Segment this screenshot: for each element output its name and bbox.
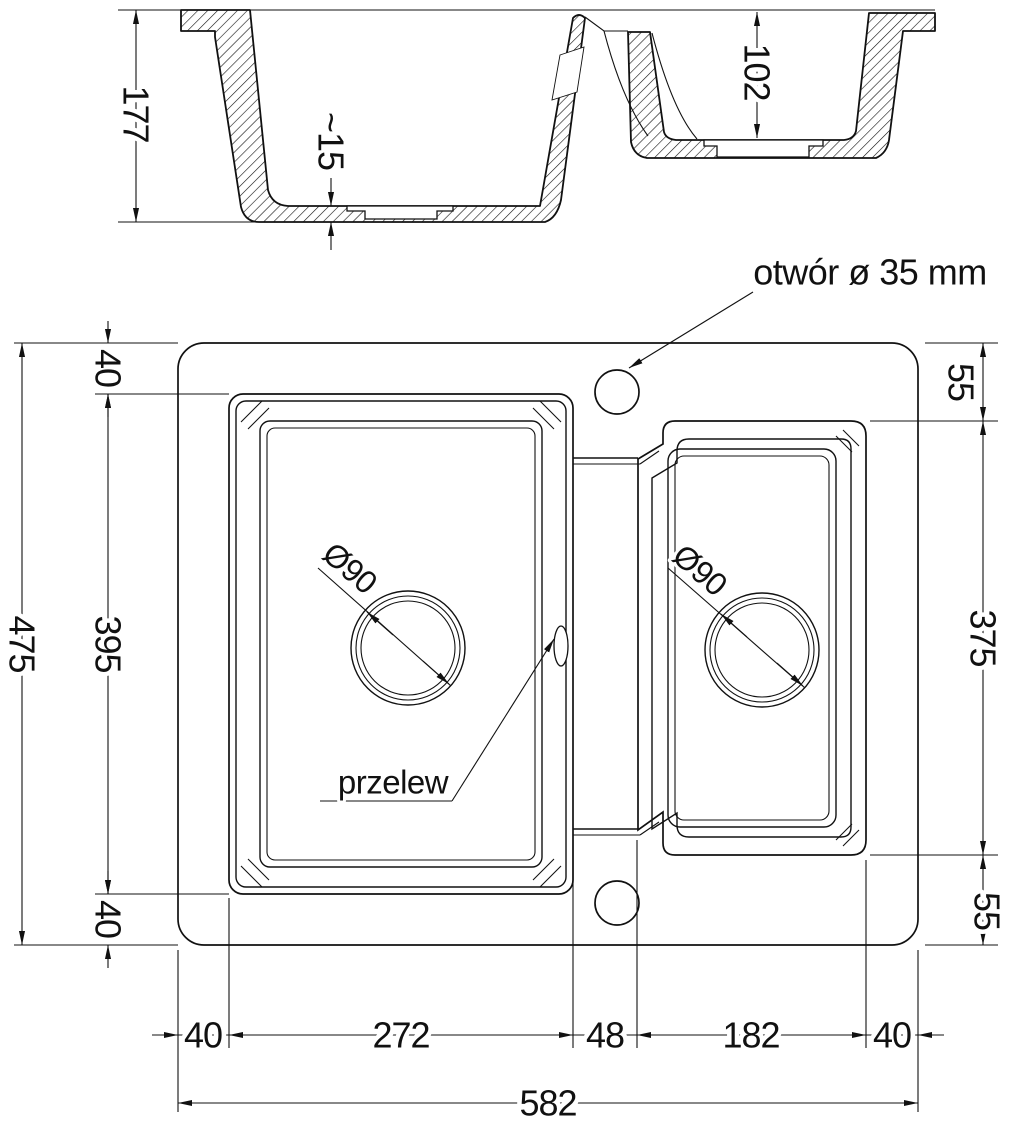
bowl1-outline-mid: [236, 401, 566, 887]
faucet-hole-leader: [629, 292, 753, 368]
dim-height-total: 475: [2, 615, 43, 672]
label-faucet-hole: otwór ø 35 mm: [753, 252, 987, 293]
plan-view: Ø90 Ø90 przelew otwór ø 35 mm: [2, 252, 1008, 1124]
bowl1-corner-bevels: [241, 401, 561, 887]
dim-right-top-margin: 55: [941, 363, 982, 401]
bottom-dimensions: [152, 840, 944, 1112]
dim-bowl2-width: 182: [722, 1015, 779, 1056]
dim-drain-left: Ø90: [316, 535, 384, 601]
dim-bowl2-height: 375: [963, 609, 1004, 666]
dim-floor-thickness: ~15: [311, 112, 352, 170]
dim-bottom-margin: 40: [88, 900, 129, 938]
sink-technical-drawing: 177 ~15 102: [0, 0, 1011, 1131]
bowl1-drain: [318, 568, 465, 705]
label-overflow: przelew: [338, 764, 449, 801]
bowl2-drain: [668, 568, 819, 707]
dim-bowl1-height: 395: [88, 615, 129, 672]
overflow-leader: [452, 639, 554, 801]
dim-bowl1-width: 272: [372, 1015, 429, 1056]
faucet-hole-top: [595, 370, 639, 414]
bowl2-floor-inner: [675, 456, 829, 820]
section-small-bowl: [628, 13, 935, 158]
section-main-bowl: [181, 10, 585, 222]
bowl1-outline-outer: [229, 394, 573, 894]
drawing-canvas: 177 ~15 102: [0, 0, 1011, 1131]
divider-break-band: [552, 47, 584, 100]
dim-left-margin: 40: [184, 1015, 222, 1056]
bowl2-outline-mid: [652, 439, 851, 837]
divider-channel: [573, 451, 659, 835]
bowl2-floor-outer: [668, 449, 836, 827]
dim-right-bottom-margin: 55: [967, 892, 1008, 930]
dim-depth-small: 102: [737, 43, 778, 100]
overflow-hole: [554, 626, 568, 666]
saddle-edge-line: [585, 17, 628, 31]
dim-drain-right: Ø90: [666, 537, 734, 603]
dim-top-margin: 40: [88, 349, 129, 387]
bowl2-outline-outer: [638, 421, 866, 855]
bowl2-corner-bevels: [836, 430, 859, 846]
section-view: 177 ~15 102: [116, 10, 936, 250]
dim-right-margin: 40: [873, 1015, 911, 1056]
dim-width-total: 582: [519, 1083, 576, 1124]
dim-divider-width: 48: [586, 1015, 624, 1056]
dim-depth-main: 177: [116, 85, 157, 142]
drain-recess-small: [704, 140, 823, 157]
faucet-hole-bottom: [595, 881, 639, 925]
